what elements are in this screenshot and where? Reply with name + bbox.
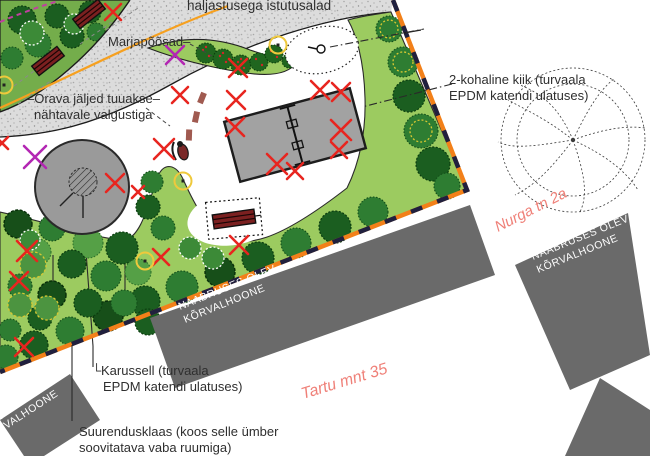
tree xyxy=(141,171,163,193)
site-plan-drawing: NAABRUSES OLEV KÕRVALHOONE NAABRUSES OLE… xyxy=(0,0,650,456)
light-fixture-dot xyxy=(144,260,147,263)
tree xyxy=(393,80,425,112)
tree xyxy=(0,319,21,341)
label-swing-1: 2-kohaline kiik (turvaala xyxy=(449,72,586,87)
label-swing-2: EPDM katendi ulatuses) xyxy=(449,88,588,103)
tree xyxy=(58,250,86,278)
light-fixture-dot xyxy=(182,180,185,183)
label-berry-bushes: Marjapõõsad– xyxy=(108,34,191,49)
shrub xyxy=(202,247,224,269)
tree xyxy=(74,289,102,317)
label-squirrel-tracks-2: nähtavale valgustiga xyxy=(34,107,153,122)
tree xyxy=(1,47,23,69)
shrub xyxy=(35,296,59,320)
shrub xyxy=(179,237,201,259)
label-magnifier-1: Suurendusklaas (koos selle ümber xyxy=(79,424,279,439)
label-carousel-2: EPDM katendi ulatuses) xyxy=(103,379,242,394)
tree xyxy=(151,216,175,240)
tree xyxy=(106,232,138,264)
tree xyxy=(404,114,438,148)
tree xyxy=(111,290,137,316)
light-fixture-dot xyxy=(277,44,280,47)
tree xyxy=(136,195,160,219)
carousel-equipment xyxy=(69,168,97,196)
tree xyxy=(91,261,121,291)
label-magnifier-2: soovitatava vaba ruumiga) xyxy=(79,440,231,455)
shrub xyxy=(20,21,44,45)
shrub xyxy=(8,293,32,317)
site-plan-page: NAABRUSES OLEV KÕRVALHOONE NAABRUSES OLE… xyxy=(0,0,650,456)
label-squirrel-tracks-1: –Orava jäljed tuuakse– xyxy=(27,91,161,106)
label-carousel-1: Karussell (turvaala xyxy=(101,363,209,378)
tree xyxy=(125,259,151,285)
light-fixture-dot xyxy=(3,84,6,87)
label-planting-area: haljastusega istutusalad xyxy=(187,0,331,13)
